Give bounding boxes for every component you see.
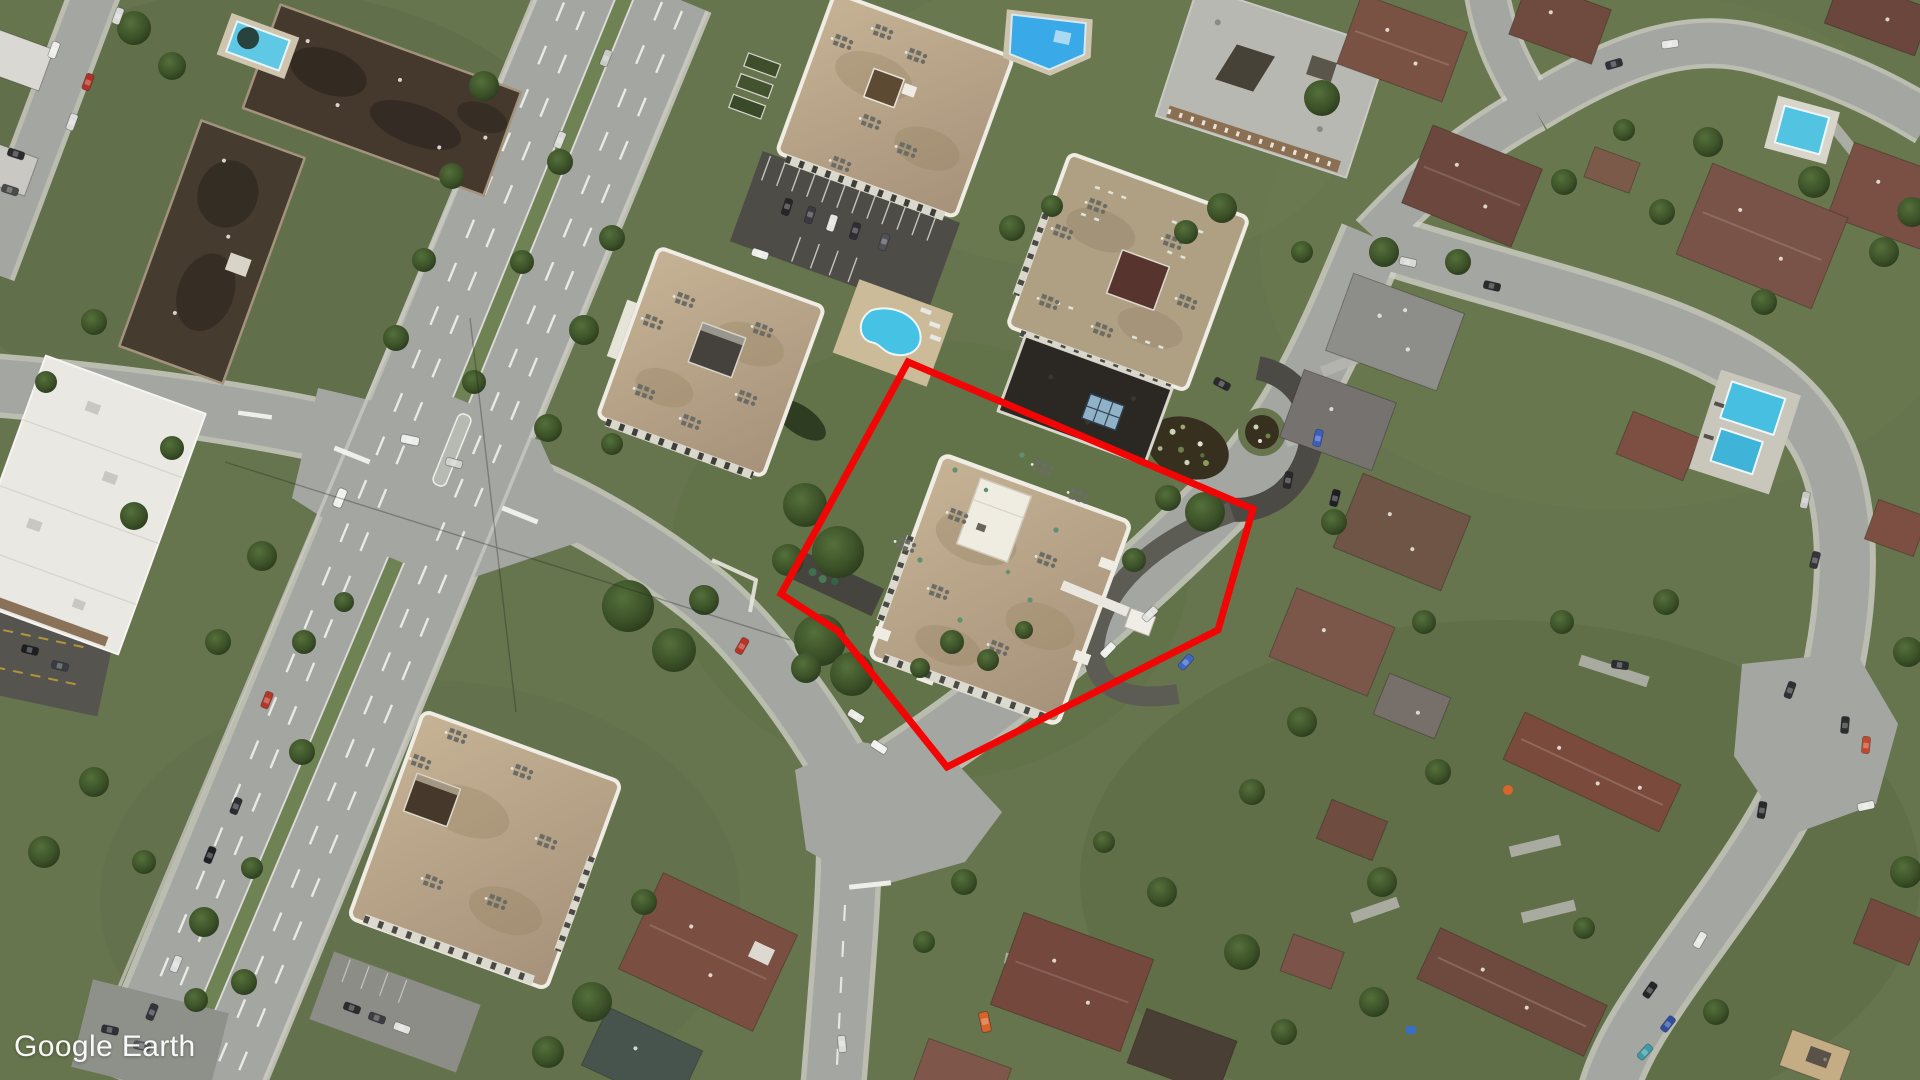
- blue-tarp: [1406, 1026, 1416, 1034]
- google-earth-watermark: Google Earth: [14, 1030, 196, 1064]
- patio-umbrella: [1503, 785, 1513, 795]
- satellite-map-canvas[interactable]: Google Earth: [0, 0, 1920, 1080]
- aerial-imagery: [0, 0, 1920, 1080]
